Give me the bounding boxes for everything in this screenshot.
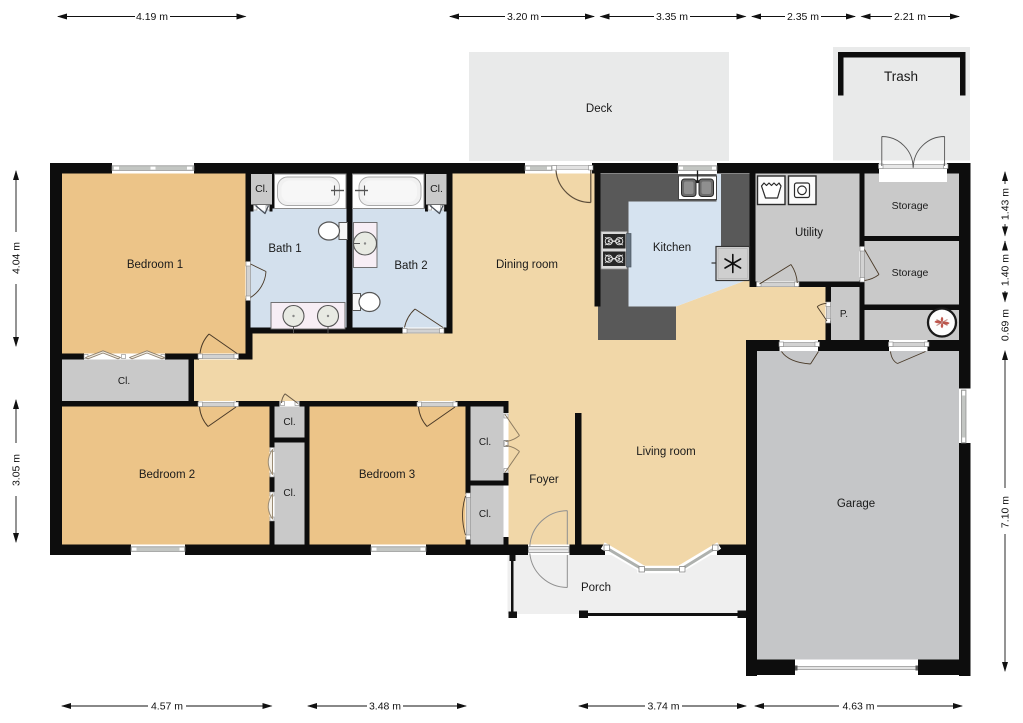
- svg-text:3.20 m: 3.20 m: [507, 11, 539, 23]
- svg-text:Garage: Garage: [837, 498, 875, 510]
- svg-text:4.63 m: 4.63 m: [842, 701, 874, 713]
- svg-text:Foyer: Foyer: [529, 474, 559, 486]
- svg-text:4.04 m: 4.04 m: [11, 242, 23, 274]
- svg-text:0.69 m: 0.69 m: [1000, 309, 1012, 341]
- svg-text:2.35 m: 2.35 m: [787, 11, 819, 23]
- svg-text:Cl.: Cl.: [430, 183, 443, 195]
- svg-text:P.: P.: [840, 309, 848, 320]
- svg-text:3.48 m: 3.48 m: [369, 701, 401, 713]
- svg-text:1.40 m: 1.40 m: [1000, 254, 1012, 286]
- svg-text:Porch: Porch: [581, 582, 611, 594]
- svg-text:7.10 m: 7.10 m: [1000, 496, 1012, 528]
- svg-text:3.35 m: 3.35 m: [656, 11, 688, 23]
- svg-text:1.43 m: 1.43 m: [1000, 188, 1012, 220]
- svg-text:Cl.: Cl.: [479, 509, 491, 520]
- svg-text:4.57 m: 4.57 m: [151, 701, 183, 713]
- svg-text:Storage: Storage: [892, 200, 929, 212]
- svg-text:Cl.: Cl.: [118, 376, 130, 387]
- svg-text:Dining room: Dining room: [496, 259, 558, 271]
- svg-text:3.05 m: 3.05 m: [11, 454, 23, 486]
- svg-text:Utility: Utility: [795, 227, 823, 239]
- svg-text:Bath 1: Bath 1: [268, 243, 301, 255]
- svg-text:Cl.: Cl.: [479, 437, 491, 448]
- svg-text:Storage: Storage: [892, 267, 929, 279]
- svg-text:Cl.: Cl.: [255, 183, 268, 195]
- svg-text:4.19 m: 4.19 m: [136, 11, 168, 23]
- svg-text:Trash: Trash: [884, 69, 918, 84]
- svg-text:Bedroom 3: Bedroom 3: [359, 469, 415, 481]
- svg-text:Kitchen: Kitchen: [653, 242, 691, 254]
- svg-text:Cl.: Cl.: [283, 488, 295, 499]
- svg-text:Bedroom 1: Bedroom 1: [127, 259, 183, 271]
- svg-text:Bath 2: Bath 2: [394, 260, 427, 272]
- svg-text:3.74 m: 3.74 m: [647, 701, 679, 713]
- svg-text:Living room: Living room: [636, 446, 695, 458]
- svg-text:2.21 m: 2.21 m: [894, 11, 926, 23]
- svg-text:Cl.: Cl.: [283, 417, 295, 428]
- svg-text:Deck: Deck: [586, 103, 612, 115]
- svg-text:Bedroom 2: Bedroom 2: [139, 469, 195, 481]
